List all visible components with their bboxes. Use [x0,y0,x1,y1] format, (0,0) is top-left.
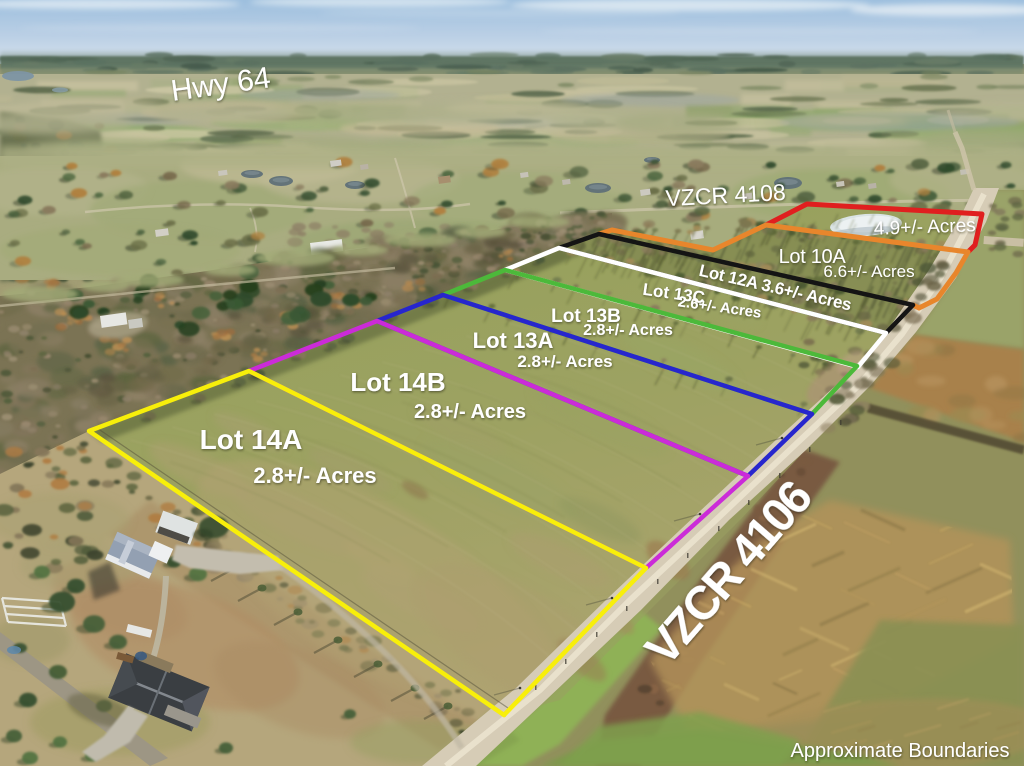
svg-text:2.8+/- Acres: 2.8+/- Acres [253,463,376,488]
svg-text:2.8+/- Acres: 2.8+/- Acres [414,401,526,423]
svg-text:Lot 13A: Lot 13A [473,328,554,353]
svg-text:6.6+/- Acres: 6.6+/- Acres [823,262,914,281]
svg-text:2.8+/- Acres: 2.8+/- Acres [517,352,612,371]
svg-text:Lot 14A: Lot 14A [200,424,303,455]
svg-text:Approximate Boundaries: Approximate Boundaries [790,740,1009,762]
svg-text:4.9+/- Acres: 4.9+/- Acres [874,215,977,240]
svg-text:Lot 14B: Lot 14B [350,367,445,397]
svg-text:2.8+/- Acres: 2.8+/- Acres [583,322,673,339]
